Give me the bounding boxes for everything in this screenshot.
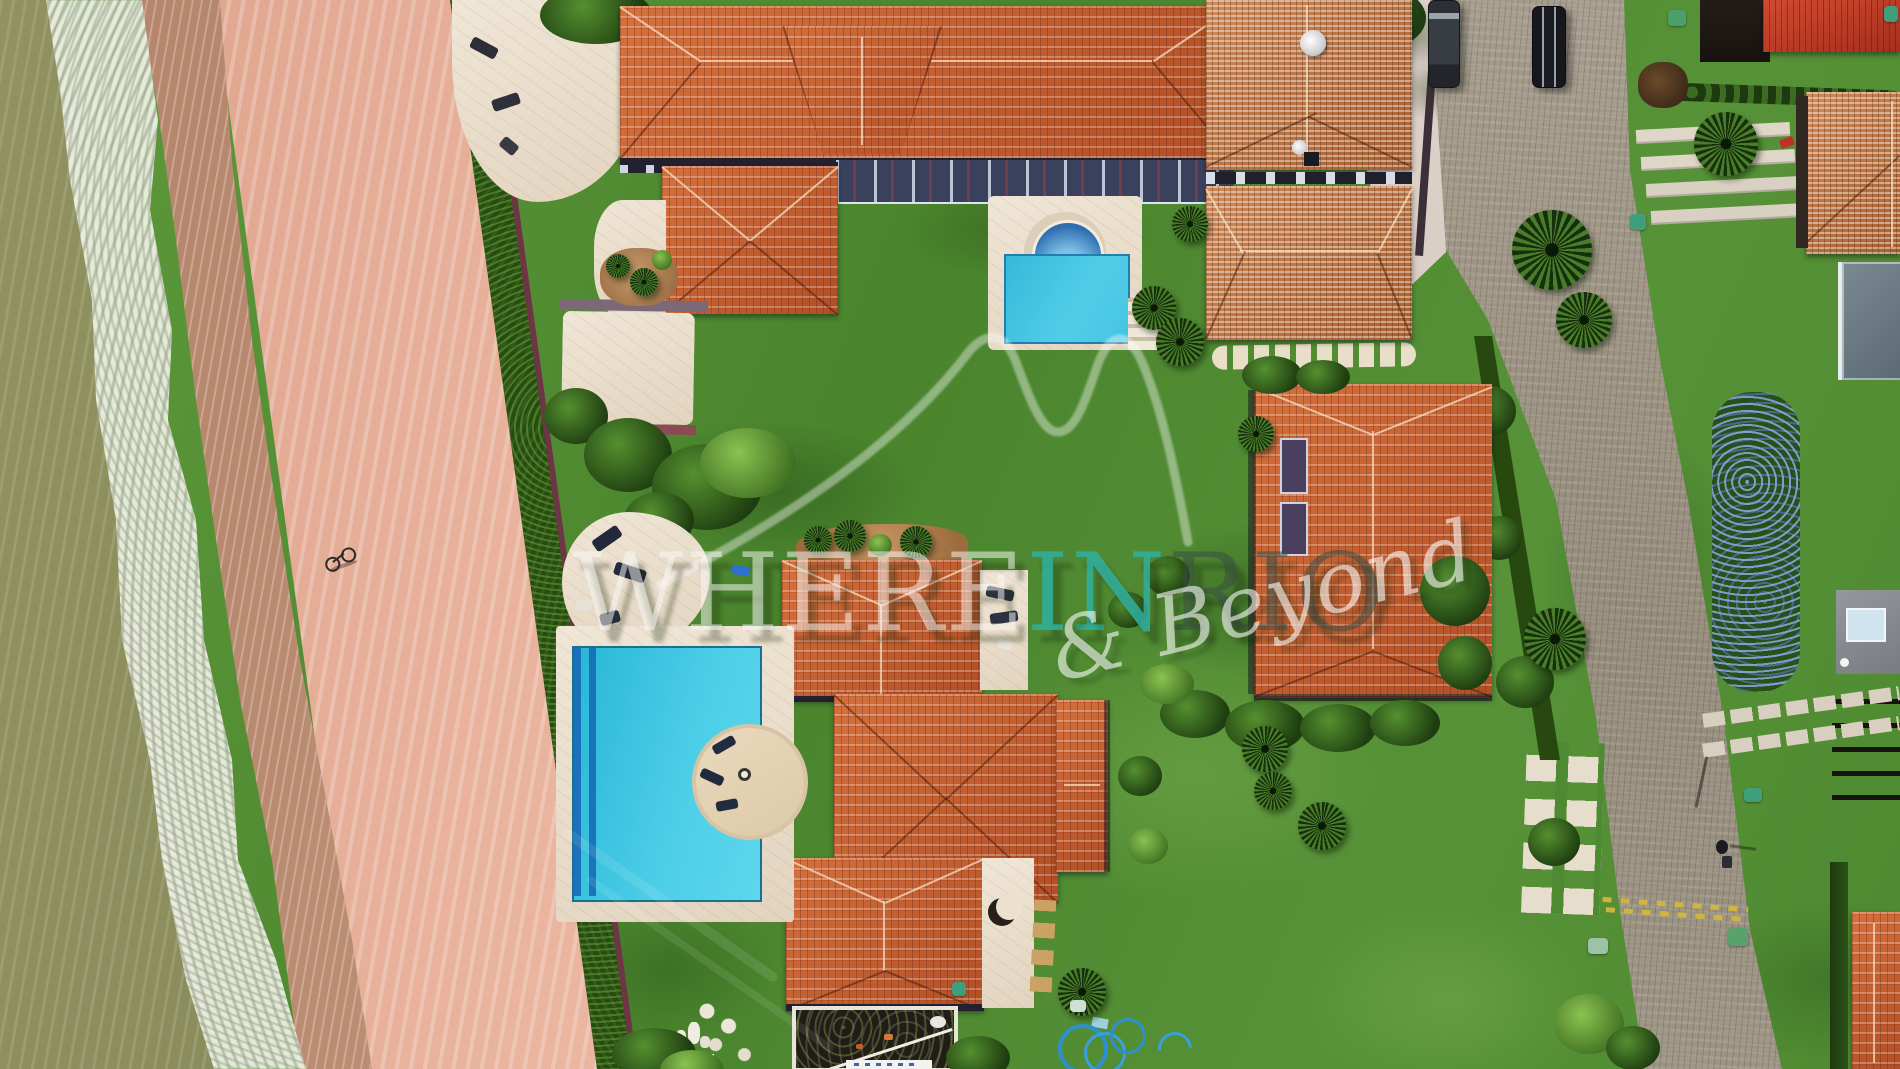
garden-steps — [1651, 203, 1806, 225]
red-lawnmower — [1779, 136, 1795, 149]
roof-ridge-line — [1240, 250, 1378, 252]
roof-hip-line — [619, 63, 701, 160]
utility-box — [1884, 6, 1898, 22]
hose-arc — [1151, 1025, 1199, 1069]
crescent-ornament-inner — [996, 894, 1022, 920]
utility-box — [1744, 788, 1762, 802]
sign-with-blue-text — [846, 1060, 932, 1069]
hose-coil — [1110, 1018, 1146, 1054]
dark-neighbor-building — [1700, 0, 1770, 62]
white-item — [930, 1016, 946, 1028]
roofline-bush — [1296, 360, 1350, 394]
person-mowing — [1716, 840, 1728, 854]
gazebo-lamp — [1840, 658, 1849, 667]
palm-over-road — [1556, 292, 1612, 348]
roof-hip-line — [1205, 189, 1245, 256]
satellite-dish-large — [1300, 30, 1326, 56]
pool-peninsula-deck — [692, 724, 808, 840]
villa-gap-wall — [1206, 172, 1412, 184]
gazebo-roof — [1836, 590, 1900, 674]
roof-hip-line — [1377, 189, 1413, 254]
roof-ridge-line — [1891, 101, 1893, 247]
palm-over-road — [1512, 210, 1592, 290]
peninsula-table — [738, 768, 751, 781]
roof-hip-line — [1805, 155, 1900, 244]
foundation-hedge — [1370, 700, 1440, 746]
round-palm — [1298, 802, 1346, 850]
orange-item — [884, 1034, 893, 1040]
verge-tree — [1528, 818, 1580, 866]
utility-box — [1588, 938, 1608, 954]
utility-box — [1728, 928, 1748, 946]
roof-skylight — [1280, 438, 1308, 494]
hedge-wall-bottom-right — [1830, 862, 1848, 1069]
bottom-shrubs — [946, 1036, 1010, 1069]
roof-hip-line — [1254, 650, 1374, 698]
roof-valley-line — [945, 694, 1058, 800]
roof-ridge-line — [1873, 923, 1875, 1063]
garden-bush — [1128, 828, 1168, 864]
roof-hip-line — [1308, 116, 1412, 168]
center-villa-east-wing — [1056, 700, 1108, 872]
verge-bush — [1606, 1026, 1660, 1069]
parked-suv-1 — [1428, 0, 1460, 88]
utility-box — [1668, 10, 1686, 26]
garden-steps — [1646, 176, 1801, 198]
garden-plant — [606, 254, 630, 278]
gazebo-skylight — [1846, 608, 1886, 642]
foundation-hedge — [1300, 704, 1376, 752]
roof-ridge-line — [861, 37, 863, 145]
agave-plant — [652, 250, 672, 270]
round-palm — [1172, 206, 1208, 242]
north-east-villa-roof — [1206, 0, 1412, 170]
palm-tree — [1694, 112, 1758, 176]
roof-hip-line — [661, 166, 750, 241]
orange-item — [856, 1044, 863, 1049]
round-palm — [1242, 726, 1288, 772]
roof-hip-line — [885, 858, 984, 904]
roof-ridge-line — [883, 901, 885, 971]
round-palm — [1254, 772, 1292, 810]
center-villa-se-patio — [982, 858, 1034, 1008]
roof-hip-line — [786, 858, 885, 904]
aerial-photo-scene: WHEREINRIO & Beyond — [0, 0, 1900, 1069]
villa-eave-shadow — [1104, 700, 1110, 872]
roof-hip-line — [1374, 386, 1493, 435]
villa-eave-shadow — [1254, 694, 1492, 701]
garden-bush — [1118, 756, 1162, 796]
roof-hip-line — [1377, 253, 1413, 339]
neighbor-house-roof-bottom — [1852, 912, 1900, 1069]
red-roof-top-corner — [1763, 0, 1900, 52]
chimney — [1304, 152, 1319, 166]
roof-ridge-line — [1064, 784, 1100, 786]
neighbor-dark-wall — [1796, 96, 1808, 248]
roadside-trees — [1438, 636, 1492, 690]
compost-bin — [1638, 62, 1688, 108]
palm-over-road — [1524, 608, 1586, 670]
utility-box — [952, 982, 966, 996]
blue-garden-hose — [1058, 1002, 1208, 1069]
roof-ridge-line — [1306, 5, 1308, 155]
roof-valley-line — [833, 694, 946, 800]
utility-box — [1630, 214, 1646, 230]
wicker-lounger-row — [1030, 899, 1057, 992]
blue-flower-hedge — [1712, 392, 1800, 692]
neighbor-house-roof — [1806, 92, 1900, 254]
roof-hip-line — [749, 166, 838, 241]
gray-neighbor-house — [1838, 262, 1900, 380]
parked-suv-2 — [1532, 6, 1566, 88]
watermark-where: WHERE — [572, 531, 1026, 656]
lawn-mower — [1722, 856, 1732, 868]
roof-hip-line — [619, 6, 701, 62]
